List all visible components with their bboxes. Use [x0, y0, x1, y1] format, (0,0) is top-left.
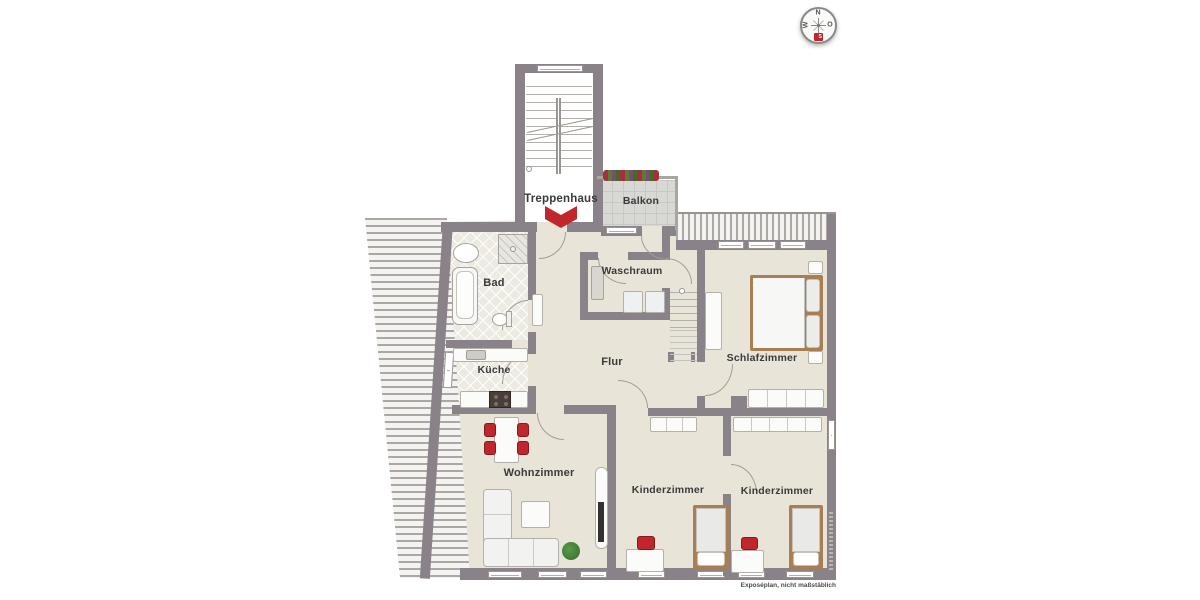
wall-segment: [593, 64, 603, 232]
plant: [562, 542, 580, 560]
wall-segment: [580, 252, 588, 320]
double-bed-duvet: [753, 278, 805, 348]
stairs-down-arrow-icon: [545, 206, 577, 228]
kitchen-counter-top: [453, 348, 528, 362]
sofa-horizontal: [483, 538, 559, 567]
wall-segment: [697, 408, 827, 416]
floor-plan: Treppenhaus Balkon Bad Waschraum Küche F…: [0, 0, 1200, 600]
compass-north-label: N: [815, 10, 820, 17]
south-window: [697, 571, 725, 578]
north-window: [780, 241, 806, 249]
dining-chair: [484, 441, 496, 455]
footnote: Exposéplan, nicht maßstäblich: [741, 582, 836, 589]
wall-segment: [441, 222, 537, 232]
room-label-kinderzimmer-2: Kinderzimmer: [741, 485, 813, 497]
dining-chair: [517, 441, 529, 455]
wall-segment: [697, 250, 705, 362]
internal-stair-treads: [670, 292, 697, 330]
dining-table: [494, 417, 519, 463]
roof-slope-hatch-top: [676, 214, 827, 242]
pillow: [806, 315, 820, 348]
wardrobe: [650, 417, 697, 432]
wall-segment: [446, 340, 512, 348]
single-bed-duvet: [792, 508, 820, 552]
compass-south-marker: S: [814, 33, 823, 41]
wall-segment: [648, 408, 697, 416]
wardrobe: [748, 389, 824, 408]
hall-cabinet: [532, 294, 543, 326]
balcony-railing: [675, 176, 678, 230]
south-window: [488, 571, 522, 578]
kitchen-sink: [466, 350, 486, 360]
wall-segment: [528, 340, 536, 348]
wardrobe: [733, 417, 822, 432]
compass-star-icon: [811, 18, 826, 33]
desk-chair: [637, 536, 655, 550]
wall-segment: [580, 312, 670, 320]
room-label-treppenhaus: Treppenhaus: [524, 193, 598, 205]
wall-segment: [731, 396, 747, 410]
room-label-kueche: Küche: [477, 364, 510, 376]
north-window: [748, 241, 776, 249]
room-label-bad: Bad: [483, 277, 504, 289]
wall-segment: [723, 416, 731, 456]
bathroom-sink: [453, 243, 479, 263]
stair-post: [526, 166, 532, 172]
nightstand: [808, 261, 823, 274]
north-window: [718, 241, 744, 249]
desk: [731, 550, 764, 573]
balcony-window: [606, 227, 637, 234]
stairwell-window: [537, 65, 583, 72]
pillow: [793, 552, 819, 566]
nightstand: [808, 351, 823, 364]
flower-box: [603, 170, 659, 181]
right-window: [828, 420, 835, 450]
stove: [489, 391, 511, 408]
south-window: [786, 571, 814, 578]
room-label-balkon: Balkon: [623, 195, 659, 207]
single-bed-duvet: [696, 508, 726, 552]
room-label-waschraum: Waschraum: [602, 265, 663, 277]
internal-stair-treads-dashed: [670, 330, 697, 362]
wall-segment: [515, 64, 525, 232]
room-label-kinderzimmer-1: Kinderzimmer: [632, 484, 704, 496]
bathtub-inner: [456, 271, 474, 319]
washing-machine: [623, 291, 643, 313]
pillow: [697, 552, 725, 566]
dining-chair: [517, 423, 529, 437]
pillow: [806, 279, 820, 312]
wall-segment: [607, 405, 616, 576]
shower-drain: [510, 246, 516, 252]
compass-west-label: W: [803, 22, 810, 29]
south-window: [580, 571, 607, 578]
stair-center-rail: [556, 98, 561, 174]
coffee-table: [521, 501, 550, 528]
stair-side-cabinet: [705, 292, 722, 350]
dryer: [645, 291, 665, 313]
room-label-wohnzimmer: Wohnzimmer: [504, 467, 575, 479]
compass-south-label: S: [819, 33, 822, 41]
south-window: [638, 571, 665, 578]
desk: [626, 549, 664, 572]
internal-stair-post: [679, 288, 685, 294]
room-label-flur: Flur: [601, 356, 623, 368]
dining-chair: [484, 423, 496, 437]
room-label-schlafzimmer: Schlafzimmer: [727, 352, 798, 364]
wall-segment: [528, 232, 536, 300]
south-window: [538, 571, 567, 578]
compass-east-label: O: [827, 22, 832, 29]
vertical-watermark: [829, 512, 833, 570]
roof-edge-line: [676, 212, 836, 214]
tv: [598, 502, 604, 542]
wall-segment: [528, 348, 536, 354]
desk-chair: [741, 537, 758, 550]
toilet-tank: [506, 311, 512, 327]
